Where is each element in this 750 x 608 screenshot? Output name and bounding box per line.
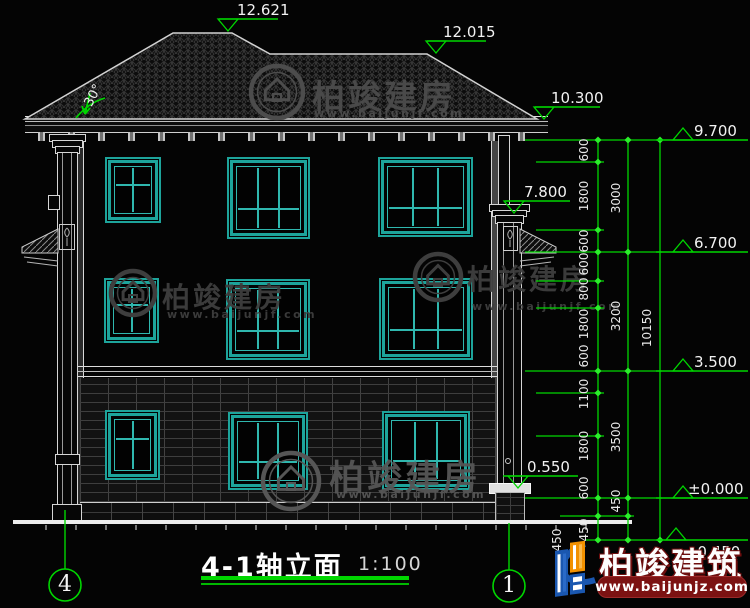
title-underline-thick: [201, 576, 409, 580]
dimension-label: 600: [577, 230, 591, 253]
dimension-tick: [594, 248, 601, 255]
title-underline-thin: [201, 583, 409, 585]
elevation-triangle-icon: [504, 201, 524, 213]
dimension-label: 10150: [640, 309, 654, 347]
elevation-triangle-icon: [673, 240, 693, 252]
cad-elevation-drawing: 柏竣建筑 www.baijunjz.com 4-1轴立面 1:100 30° 柏…: [0, 0, 750, 608]
dimension-label: 600: [577, 139, 591, 162]
drawing-scale: 1:100: [358, 553, 423, 575]
dimension-tick: [624, 512, 631, 519]
dimension-label: 3200: [609, 301, 623, 332]
dimension-label: 800: [577, 278, 591, 301]
elevation-value: 9.700: [694, 122, 737, 140]
elevation-triangle-icon: [426, 41, 446, 53]
dimension-tick: [594, 158, 601, 165]
dimension-tick: [594, 389, 601, 396]
brand-url: www.baijunjz.com: [595, 579, 749, 595]
dimension-label: 3000: [609, 183, 623, 214]
dimension-tick: [594, 367, 601, 374]
dimension-label: 600: [577, 477, 591, 500]
elevation-triangle-icon: [673, 128, 693, 140]
elevation-value: 7.800: [524, 183, 567, 201]
watermark-logo-icon: [251, 66, 303, 118]
elevation-value: 10.300: [551, 89, 604, 107]
dimension-tick: [624, 248, 631, 255]
grid-bubble-label: 4: [58, 572, 72, 597]
elevation-value: 12.621: [237, 1, 290, 19]
dimension-tick: [594, 136, 601, 143]
elevation-value: 12.015: [443, 23, 496, 41]
elevation-triangle-icon: [508, 476, 528, 488]
dimension-label: 450: [609, 490, 623, 513]
dimension-tick: [594, 304, 601, 311]
dimension-label: 1800: [577, 309, 591, 340]
dimension-tick: [594, 226, 601, 233]
dimension-label: 600: [577, 253, 591, 276]
dimension-label: 1800: [577, 431, 591, 462]
elevation-value: ±0.000: [688, 480, 744, 498]
dimension-tick: [594, 494, 601, 501]
watermark-logo-icon: [415, 254, 461, 300]
dimension-tick: [594, 512, 601, 519]
elevation-value: 0.550: [527, 458, 570, 476]
dimension-tick: [594, 277, 601, 284]
dimension-annotation-layer: [0, 0, 750, 608]
watermark-logo-icon: [263, 453, 319, 509]
dimension-label: 1800: [577, 181, 591, 212]
grid-bubble-label: 1: [502, 573, 516, 598]
dimension-tick: [594, 432, 601, 439]
dimension-tick: [624, 367, 631, 374]
dimension-label: 3500: [609, 422, 623, 453]
dimension-tick: [624, 494, 631, 501]
dimension-label: 1100: [577, 379, 591, 410]
brand-url-pill: www.baijunjz.com: [597, 576, 747, 598]
dimension-label: 600: [577, 345, 591, 368]
elevation-triangle-icon: [218, 19, 238, 31]
elevation-triangle-icon: [673, 359, 693, 371]
elevation-value: 6.700: [694, 234, 737, 252]
elevation-triangle-icon: [534, 107, 554, 119]
elevation-value: 3.500: [694, 353, 737, 371]
dimension-tick: [624, 136, 631, 143]
watermark-logo-icon: [111, 271, 155, 315]
